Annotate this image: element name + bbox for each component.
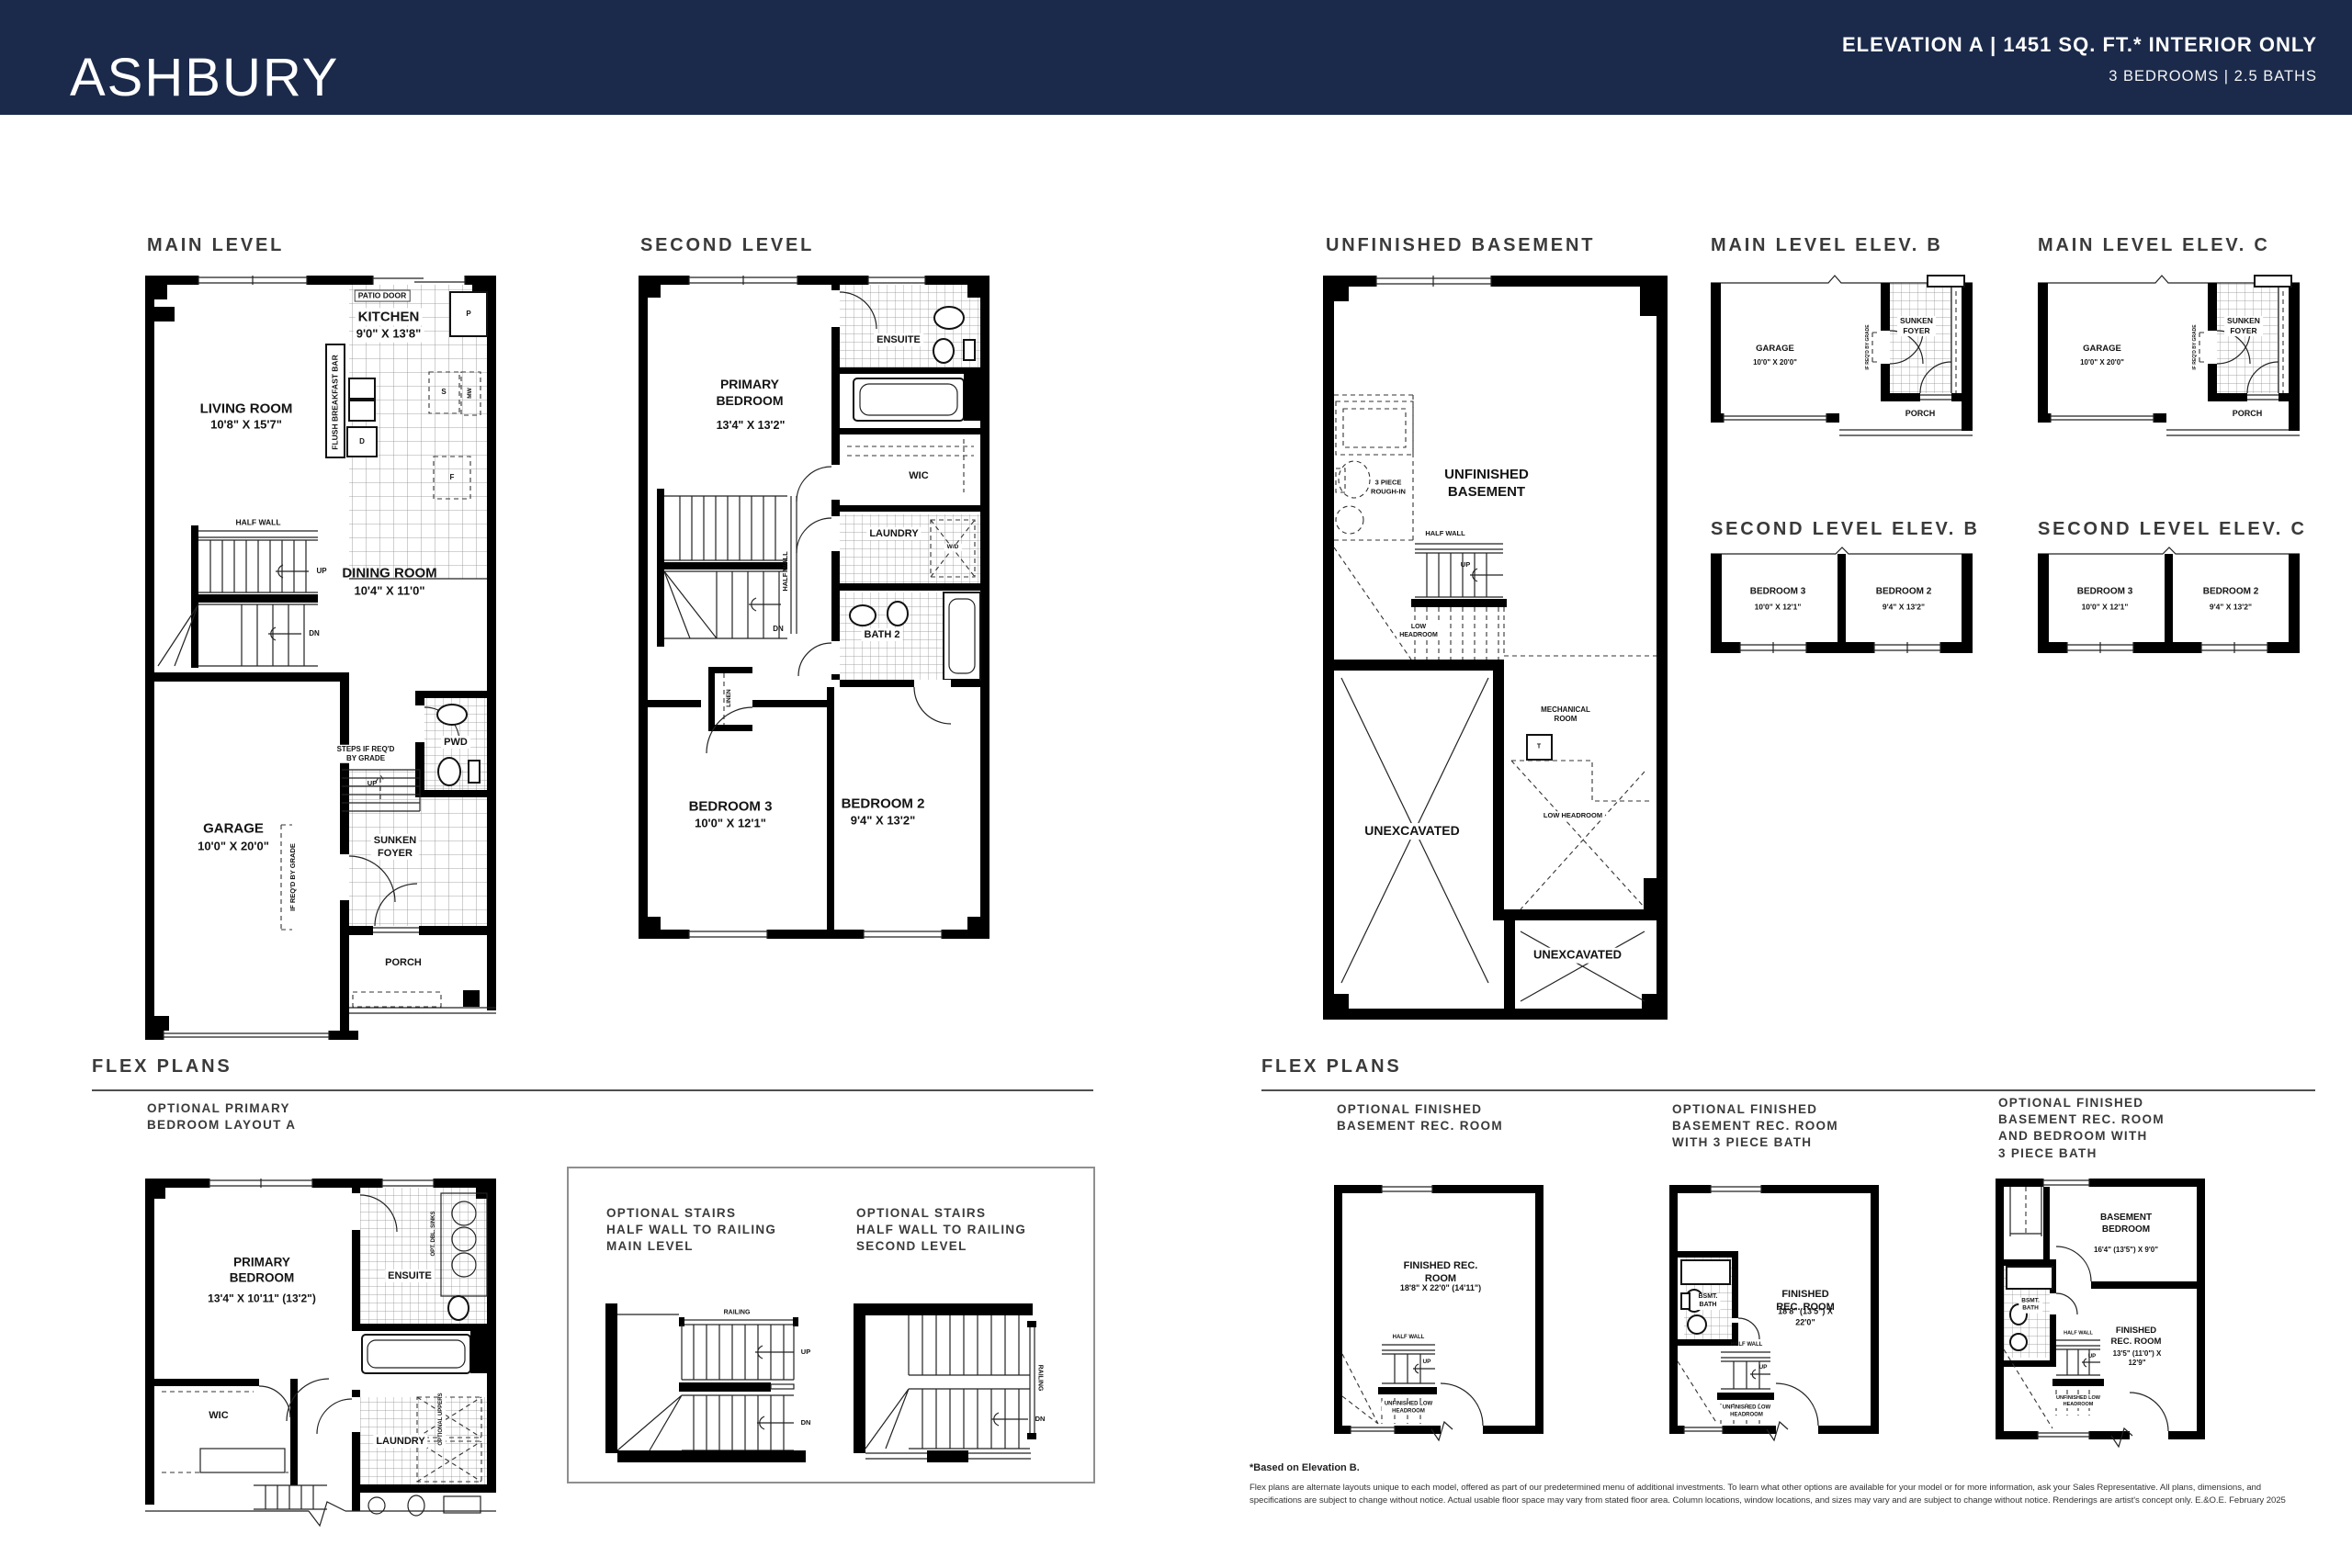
grade-note-label: IF REQ'D BY GRADE	[288, 843, 298, 911]
basement-bedroom-dims: 16'4" (13'5") X 9'0"	[2094, 1246, 2158, 1255]
sink-label: S	[441, 388, 446, 397]
heading-main-level-elev-c: MAIN LEVEL ELEV. C	[2038, 235, 2270, 256]
bedroom2-dims: 9'4" X 13'2"	[1883, 603, 1925, 613]
main-level-elev-b-plan: GARAGE 10'0" X 20'0" IF REQ'D BY GRADE S…	[1711, 276, 1973, 441]
flex-rule-right	[1261, 1089, 2315, 1091]
garage-label: GARAGE	[2083, 344, 2121, 355]
primary-bedroom-dims: 13'4" X 13'2"	[717, 418, 786, 433]
mechanical-room-label: MECHANICAL ROOM	[1541, 705, 1590, 724]
bedroom3-label: BEDROOM 3	[689, 797, 773, 815]
linen-label: LINEN	[726, 689, 733, 707]
optional-rec-bath-plan: BSMT. BATH FINISHED REC. ROOM 18'8" (13'…	[1669, 1185, 1879, 1447]
grade-note-label: IF REQ'D BY GRADE	[2192, 324, 2198, 369]
finished-rec-room-dims: 18'8" X 22'0" (14'11")	[1400, 1283, 1481, 1294]
porch-label: PORCH	[1905, 409, 1936, 420]
second-level-plan: PRIMARY BEDROOM 13'4" X 13'2" ENSUITE WI…	[639, 276, 989, 939]
low-headroom-label: UNFINISHED LOW HEADROOM	[1382, 1401, 1435, 1415]
stairs-main-diagram	[605, 1292, 817, 1462]
foyer-up-label: UP	[367, 779, 377, 788]
dining-room-dims: 10'4" X 11'0"	[354, 584, 424, 600]
optional-uppers-label: OPTIONAL UPPERS	[438, 1390, 446, 1448]
footer-disclaimer-line1: Flex plans are alternate layouts unique …	[1249, 1483, 2261, 1493]
footer-disclaimer-line2: specifications are subject to change wit…	[1249, 1495, 2286, 1506]
living-room-dims: 10'8" X 15'7"	[210, 418, 282, 434]
sunken-foyer-label: SUNKEN FOYER	[2224, 316, 2263, 336]
low-headroom-label: UNFINISHED LOW HEADROOM	[1720, 1404, 1773, 1418]
up-label: UP	[316, 567, 326, 576]
optional-rec-room-plan: FINISHED REC. ROOM 18'8" X 22'0" (14'11"…	[1334, 1185, 1543, 1447]
half-wall-label: HALF WALL	[235, 518, 280, 528]
dn-label: DN	[309, 629, 320, 638]
basement-bedroom-label: BASEMENT BEDROOM	[2100, 1213, 2152, 1236]
model-name: ASHBURY	[70, 51, 339, 105]
washer-dryer-label: W/D	[944, 544, 962, 551]
second-level-elev-b-plan: BEDROOM 3 10'0" X 12'1" BEDROOM 2 9'4" X…	[1711, 548, 1973, 663]
optional-rec-room-heading: OPTIONAL FINISHED BASEMENT REC. ROOM	[1337, 1101, 1503, 1134]
powder-room-label: PWD	[441, 736, 470, 749]
unfinished-basement-plan: 3 PIECE ROUGH-IN UNFINISHED BASEMENT HAL…	[1323, 276, 1668, 1020]
sunken-foyer-label: SUNKEN FOYER	[1897, 316, 1936, 336]
low-headroom-label: UNFINISHED LOW HEADROOM	[2053, 1395, 2103, 1408]
rough-in-label: 3 PIECE ROUGH-IN	[1371, 478, 1406, 495]
garage-label: GARAGE	[203, 819, 264, 837]
fridge-label: F	[450, 473, 455, 482]
optional-rec-bath-heading: OPTIONAL FINISHED BASEMENT REC. ROOM WIT…	[1672, 1101, 1838, 1152]
bed-bath-info: 3 BEDROOMS | 2.5 BATHS	[1842, 68, 2317, 85]
kitchen-label: KITCHEN	[356, 308, 423, 325]
stairs-second-drawing	[854, 1292, 1065, 1462]
bath2-label: BATH 2	[862, 628, 903, 641]
garage-dims: 10'0" X 20'0"	[198, 840, 269, 855]
up-main-label: UP	[801, 1348, 810, 1357]
opt-dbl-sinks-label: OPT. DBL. SINKS	[431, 1211, 438, 1256]
bsmt-bath-label: BSMT. BATH	[1696, 1293, 1721, 1310]
bedroom3-label: BEDROOM 3	[2077, 587, 2133, 599]
footer-note: *Based on Elevation B.	[1249, 1462, 1360, 1473]
stairs-main-drawing	[605, 1292, 817, 1462]
bedroom2-dims: 9'4" X 13'2"	[851, 814, 916, 829]
second-level-elev-c-plan: BEDROOM 3 10'0" X 12'1" BEDROOM 2 9'4" X…	[2038, 548, 2300, 663]
garage-dims: 10'0" X 20'0"	[2080, 358, 2124, 367]
steps-note-label: STEPS IF REQ'D BY GRADE	[334, 745, 398, 763]
wic-label: WIC	[909, 469, 928, 482]
primary-bedroom-dims: 13'4" X 10'11" (13'2")	[208, 1292, 316, 1305]
dn-label: DN	[773, 625, 784, 634]
bedroom2-label: BEDROOM 2	[2203, 587, 2259, 599]
finished-rec-room-label: FINISHED REC. ROOM	[1389, 1259, 1492, 1285]
heading-unfinished-basement: UNFINISHED BASEMENT	[1326, 235, 1595, 256]
railing-second-label: RAILING	[1035, 1365, 1044, 1392]
porch-label: PORCH	[385, 956, 422, 969]
flush-breakfast-bar-label: FLUSH BREAKFAST BAR	[331, 355, 341, 449]
microwave-label: MW	[467, 388, 474, 399]
wic-label: WIC	[209, 1409, 228, 1422]
optional-primary-plan: PRIMARY BEDROOM 13'4" X 10'11" (13'2") E…	[145, 1179, 496, 1528]
laundry-label: LAUNDRY	[866, 527, 921, 540]
heading-flex-plans-left: FLEX PLANS	[92, 1056, 232, 1077]
optional-stairs-main-heading: OPTIONAL STAIRS HALF WALL TO RAILING MAI…	[606, 1205, 776, 1256]
optional-primary-drawing	[145, 1179, 496, 1528]
grade-note-label: IF REQ'D BY GRADE	[1865, 324, 1871, 369]
half-wall-label: HALF WALL	[781, 551, 790, 591]
half-wall-label: HALF WALL	[1731, 1342, 1763, 1349]
header-right: ELEVATION A | 1451 SQ. FT.* INTERIOR ONL…	[1842, 33, 2317, 85]
second-level-elev-b-drawing	[1711, 548, 1973, 663]
dn-main-label: DN	[801, 1418, 811, 1427]
garage-label: GARAGE	[1756, 344, 1794, 355]
up-label: UP	[2088, 1354, 2096, 1361]
railing-main-label: RAILING	[724, 1310, 751, 1318]
heading-main-level: MAIN LEVEL	[147, 235, 284, 256]
elevation-info: ELEVATION A | 1451 SQ. FT.* INTERIOR ONL…	[1842, 33, 2317, 57]
bsmt-bath-label: BSMT. BATH	[2018, 1298, 2042, 1314]
second-level-elev-c-drawing	[2038, 548, 2300, 663]
heading-second-level: SECOND LEVEL	[640, 235, 814, 256]
main-level-elev-c-plan: GARAGE 10'0" X 20'0" IF REQ'D BY GRADE S…	[2038, 276, 2300, 441]
optional-primary-heading: OPTIONAL PRIMARY BEDROOM LAYOUT A	[147, 1100, 296, 1134]
half-wall-label: HALF WALL	[1425, 529, 1464, 538]
ensuite-label: ENSUITE	[385, 1269, 435, 1282]
finished-rec-room-label: FINISHED REC. ROOM	[2111, 1325, 2162, 1348]
unfinished-basement-drawing	[1323, 276, 1668, 1020]
dn-second-label: DN	[1035, 1415, 1046, 1424]
heading-second-level-elev-b: SECOND LEVEL ELEV. B	[1711, 519, 1980, 540]
bedroom3-dims: 10'0" X 12'1"	[695, 817, 766, 832]
low-headroom-label: LOW HEADROOM	[1541, 811, 1605, 820]
bedroom2-label: BEDROOM 2	[842, 795, 925, 812]
bedroom3-label: BEDROOM 3	[1750, 587, 1806, 599]
porch-label: PORCH	[2233, 409, 2263, 420]
garage-dims: 10'0" X 20'0"	[1753, 358, 1797, 367]
up-label: UP	[1422, 1359, 1430, 1366]
patio-door-label: PATIO DOOR	[355, 290, 411, 302]
up-label: UP	[1758, 1364, 1767, 1371]
laundry-label: LAUNDRY	[373, 1435, 427, 1448]
primary-bedroom-label: PRIMARY BEDROOM	[716, 377, 783, 410]
optional-stairs-panel: OPTIONAL STAIRS HALF WALL TO RAILING MAI…	[567, 1167, 1095, 1483]
low-headroom-stairs-label: LOW HEADROOM	[1396, 624, 1441, 640]
ensuite-label: ENSUITE	[874, 333, 923, 346]
optional-rec-bed-bath-plan: BASEMENT BEDROOM 16'4" (13'5") X 9'0" BS…	[1996, 1179, 2205, 1454]
kitchen-dims: 9'0" X 13'8"	[354, 327, 424, 343]
finished-rec-room-dims: 18'8" (13'5") X 22'0"	[1769, 1306, 1842, 1327]
unfinished-basement-label: UNFINISHED BASEMENT	[1444, 466, 1529, 501]
unexcavated-left-label: UNEXCAVATED	[1362, 823, 1462, 840]
half-wall-label: HALF WALL	[2064, 1330, 2093, 1337]
dining-room-label: DINING ROOM	[342, 564, 436, 581]
bedroom2-label: BEDROOM 2	[1876, 587, 1932, 599]
heading-main-level-elev-b: MAIN LEVEL ELEV. B	[1711, 235, 1943, 256]
optional-stairs-second-heading: OPTIONAL STAIRS HALF WALL TO RAILING SEC…	[856, 1205, 1026, 1256]
tank-label: T	[1537, 744, 1541, 752]
half-wall-label: HALF WALL	[1393, 1335, 1425, 1342]
header: ASHBURY ELEVATION A | 1451 SQ. FT.* INTE…	[0, 0, 2352, 115]
unexcavated-bottom-label: UNEXCAVATED	[1531, 948, 1624, 964]
living-room-label: LIVING ROOM	[200, 400, 293, 417]
bedroom3-dims: 10'0" X 12'1"	[1755, 603, 1802, 613]
bedroom3-dims: 10'0" X 12'1"	[2082, 603, 2129, 613]
heading-second-level-elev-c: SECOND LEVEL ELEV. C	[2038, 519, 2307, 540]
sunken-foyer-label: SUNKEN FOYER	[371, 834, 419, 860]
optional-rec-bed-bath-heading: OPTIONAL FINISHED BASEMENT REC. ROOM AND…	[1998, 1095, 2165, 1162]
up-label: UP	[1461, 560, 1470, 570]
optional-rec-room-drawing	[1334, 1185, 1543, 1447]
second-level-drawing	[639, 276, 989, 939]
heading-flex-plans-right: FLEX PLANS	[1261, 1056, 1401, 1077]
dishwasher-label: D	[359, 437, 365, 446]
bedroom2-dims: 9'4" X 13'2"	[2210, 603, 2252, 613]
finished-rec-room-dims: 13'5" (11'0") X 12'9"	[2103, 1349, 2171, 1368]
primary-bedroom-label: PRIMARY BEDROOM	[230, 1255, 295, 1287]
pantry-label: P	[466, 310, 470, 319]
floorplan-sheet: ASHBURY ELEVATION A | 1451 SQ. FT.* INTE…	[0, 0, 2352, 1568]
flex-rule-left	[92, 1089, 1093, 1091]
stairs-second-diagram	[854, 1292, 1065, 1462]
main-level-plan: PATIO DOOR KITCHEN 9'0" X 13'8" P S MW D…	[145, 276, 496, 1040]
